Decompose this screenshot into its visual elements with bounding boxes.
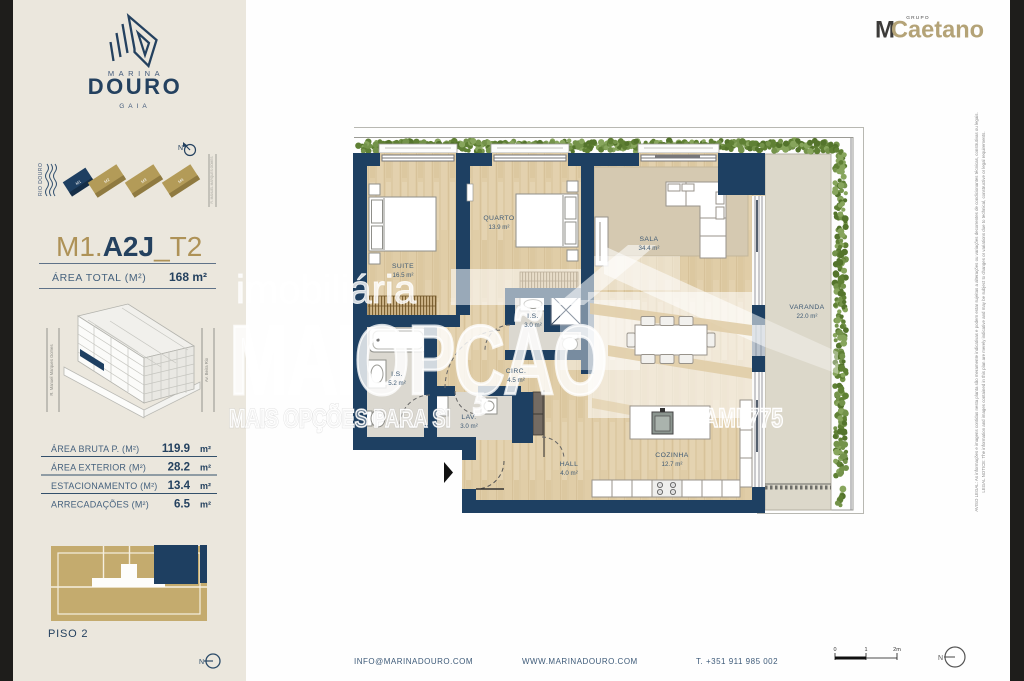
svg-text:R. Manuel Marques Gomes: R. Manuel Marques Gomes (49, 344, 54, 395)
svg-text:16.5 m²: 16.5 m² (393, 272, 414, 279)
svg-text:m²: m² (200, 500, 211, 510)
svg-text:AVISO LEGAL: As informações e: AVISO LEGAL: As informações e imagens co… (974, 112, 979, 511)
svg-text:168 m²: 168 m² (169, 270, 207, 284)
svg-text:I.S.: I.S. (391, 371, 403, 378)
svg-text:1: 1 (864, 647, 867, 653)
svg-text:N: N (199, 659, 204, 666)
svg-text:13.4: 13.4 (168, 480, 191, 492)
svg-text:3.0 m²: 3.0 m² (524, 322, 542, 329)
svg-text:CIRC.: CIRC. (506, 368, 527, 375)
svg-text:4.5 m²: 4.5 m² (507, 377, 525, 384)
svg-text:LAV.: LAV. (461, 414, 476, 421)
svg-text:m²: m² (200, 444, 211, 454)
svg-text:WWW.MARINADOURO.COM: WWW.MARINADOURO.COM (522, 657, 638, 666)
svg-text:M1.A2J_T2: M1.A2J_T2 (56, 231, 202, 262)
svg-text:12.7 m²: 12.7 m² (662, 461, 683, 468)
svg-text:2m: 2m (893, 647, 901, 653)
svg-text:Caetano: Caetano (891, 17, 984, 44)
svg-text:119.9: 119.9 (162, 443, 190, 455)
svg-text:AMI 775: AMI 775 (703, 403, 783, 433)
svg-text:m²: m² (200, 463, 211, 473)
svg-text:28.2: 28.2 (168, 462, 190, 474)
svg-text:R. MANUEL MARQUES GOMES: R. MANUEL MARQUES GOMES (210, 157, 214, 204)
svg-text:DOURO: DOURO (88, 74, 182, 99)
svg-text:SALA: SALA (640, 236, 659, 243)
svg-text:MAIS OPÇÕES PARA SI: MAIS OPÇÕES PARA SI (229, 403, 451, 433)
svg-text:HALL: HALL (560, 461, 579, 468)
svg-text:ESTACIONAMENTO (M²): ESTACIONAMENTO (M²) (51, 481, 157, 491)
svg-text:m²: m² (200, 481, 211, 491)
svg-text:I.S.: I.S. (527, 313, 539, 320)
svg-text:ÁREA TOTAL (M²): ÁREA TOTAL (M²) (52, 271, 146, 284)
svg-text:6.5: 6.5 (174, 499, 191, 511)
svg-text:RIO DOURO: RIO DOURO (38, 163, 44, 196)
svg-text:ARRECADAÇÕES (M²): ARRECADAÇÕES (M²) (51, 500, 149, 510)
svg-text:3.0 m²: 3.0 m² (460, 423, 478, 430)
svg-text:22.0 m²: 22.0 m² (797, 313, 818, 320)
svg-text:LEGAL NOTICE: The information: LEGAL NOTICE: The information and images… (981, 131, 986, 492)
svg-text:SUITE: SUITE (392, 263, 414, 270)
svg-text:T. +351 911 985 002: T. +351 911 985 002 (696, 657, 778, 666)
svg-text:PISO 2: PISO 2 (48, 628, 88, 640)
svg-text:5.2 m²: 5.2 m² (388, 380, 406, 387)
svg-text:INFO@MARINADOURO.COM: INFO@MARINADOURO.COM (354, 657, 473, 666)
svg-text:Av. Beira Rio: Av. Beira Rio (204, 357, 209, 382)
svg-text:ÁREA BRUTA P. (M²): ÁREA BRUTA P. (M²) (51, 444, 139, 454)
svg-text:34.4 m²: 34.4 m² (639, 245, 660, 252)
svg-text:4.0 m²: 4.0 m² (560, 470, 578, 477)
svg-text:QUARTO: QUARTO (483, 215, 514, 222)
svg-text:MAIOPÇÃO: MAIOPÇÃO (230, 306, 606, 416)
svg-text:N: N (938, 655, 943, 662)
svg-text:GAIA: GAIA (119, 103, 151, 110)
svg-text:VARANDA: VARANDA (789, 304, 824, 311)
svg-text:N: N (178, 145, 183, 152)
svg-text:imobiliária: imobiliária (236, 268, 417, 312)
svg-text:13.9 m²: 13.9 m² (489, 224, 510, 231)
svg-text:ÁREA EXTERIOR (M²): ÁREA EXTERIOR (M²) (51, 463, 146, 473)
svg-text:COZINHA: COZINHA (655, 452, 688, 459)
svg-text:0: 0 (833, 647, 836, 653)
